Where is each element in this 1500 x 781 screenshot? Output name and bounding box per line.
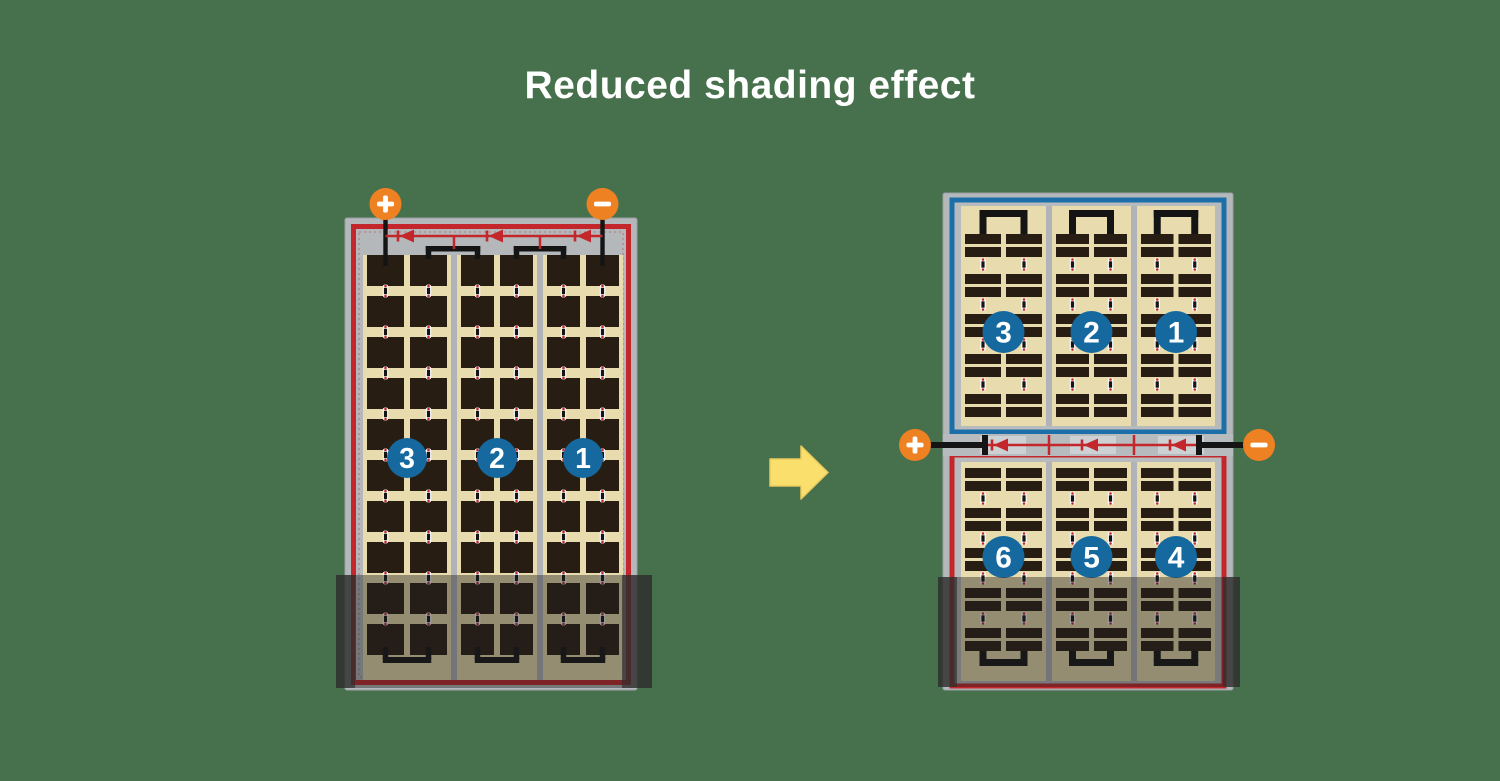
section-badge-6: 6 xyxy=(983,536,1025,578)
svg-text:1: 1 xyxy=(1168,317,1185,350)
svg-text:3: 3 xyxy=(399,443,415,475)
section-badge-2: 2 xyxy=(1071,311,1113,353)
top-string: 321 xyxy=(952,200,1224,432)
transform-arrow-icon xyxy=(765,440,835,505)
shading-overlay xyxy=(938,577,1240,687)
section-badge-5: 5 xyxy=(1071,536,1113,578)
section-badge-2: 2 xyxy=(477,438,517,478)
split-panel-illustration: 321654 xyxy=(880,185,1310,695)
diagram-title: Reduced shading effect xyxy=(0,64,1500,108)
svg-text:2: 2 xyxy=(489,443,505,475)
shading-overlay xyxy=(336,575,652,688)
plus-terminal-icon xyxy=(370,188,402,220)
section-badge-4: 4 xyxy=(1155,536,1197,578)
svg-text:5: 5 xyxy=(1083,542,1100,575)
section-badge-3: 3 xyxy=(983,311,1025,353)
svg-text:1: 1 xyxy=(575,443,591,475)
junction-band xyxy=(910,434,1264,456)
section-badge-3: 3 xyxy=(387,438,427,478)
svg-text:4: 4 xyxy=(1168,542,1185,575)
svg-text:3: 3 xyxy=(995,317,1012,350)
svg-text:6: 6 xyxy=(995,542,1012,575)
minus-terminal-icon xyxy=(1243,429,1275,461)
right-arrow-shape xyxy=(770,446,828,499)
svg-text:2: 2 xyxy=(1083,317,1100,350)
section-badge-1: 1 xyxy=(1155,311,1197,353)
plus-terminal-icon xyxy=(899,429,931,461)
minus-terminal-icon xyxy=(587,188,619,220)
diagram-canvas: Reduced shading effect 321 321654 xyxy=(0,0,1500,781)
section-badge-1: 1 xyxy=(563,438,603,478)
full-panel-illustration: 321 xyxy=(330,185,670,695)
